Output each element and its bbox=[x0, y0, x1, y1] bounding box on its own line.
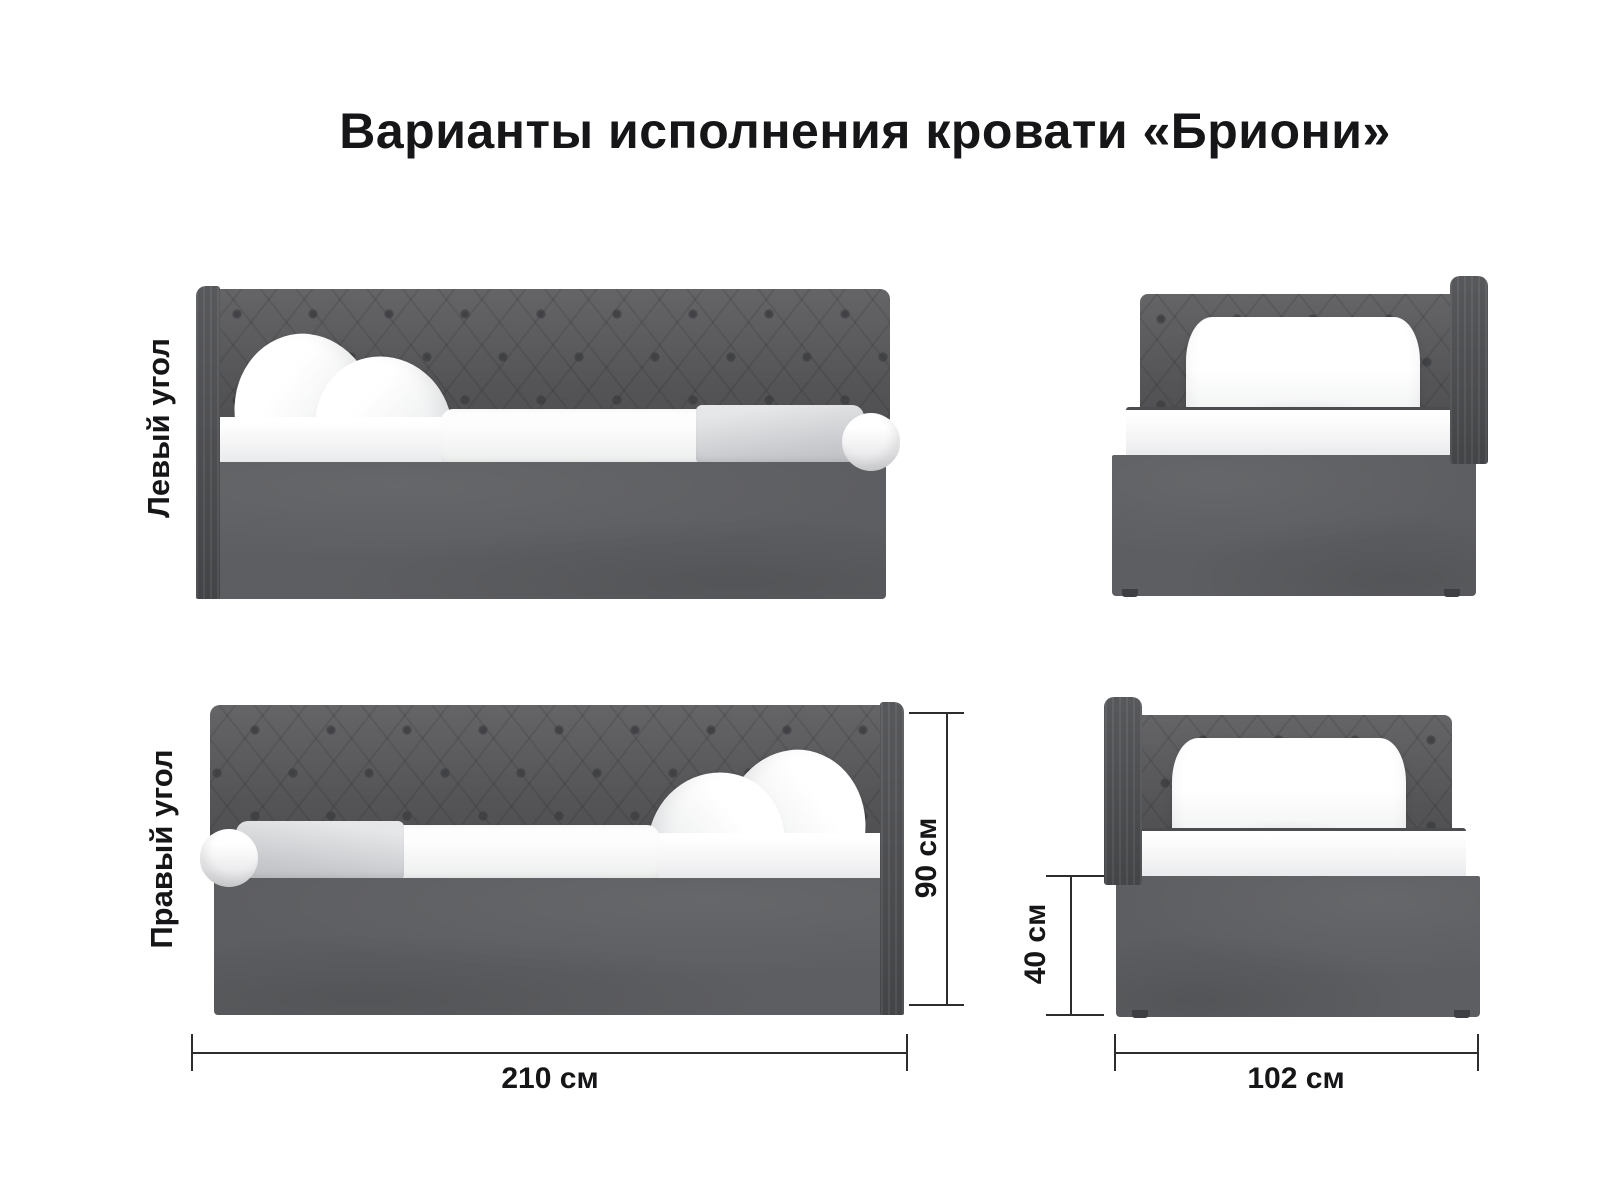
dimension-tick bbox=[1114, 1034, 1116, 1071]
bed-base bbox=[1112, 455, 1476, 596]
dimension-line-base-height bbox=[1070, 876, 1072, 1016]
bed-side-view-right-corner bbox=[200, 702, 904, 1015]
bed-foot bbox=[1122, 589, 1138, 597]
bed-front-view-left-corner bbox=[1108, 276, 1488, 597]
bed-front-view-right-corner bbox=[1104, 697, 1484, 1018]
variant-label-right-corner: Правый угол bbox=[144, 749, 180, 948]
corner-post bbox=[880, 702, 904, 1015]
bed-foot bbox=[1444, 589, 1460, 597]
page-title: Варианты исполнения кровати «Бриони» bbox=[130, 102, 1600, 160]
variant-label-left-corner: Левый угол bbox=[141, 338, 177, 518]
dimension-tick bbox=[909, 712, 964, 714]
dimension-line-total-height bbox=[946, 714, 948, 1006]
dimension-tick bbox=[1046, 875, 1104, 877]
duvet-fold bbox=[381, 825, 659, 881]
dimension-tick bbox=[906, 1034, 908, 1071]
corner-post bbox=[196, 286, 220, 599]
gray-blanket bbox=[696, 405, 864, 464]
mattress bbox=[1126, 407, 1478, 458]
bed-foot bbox=[1454, 1010, 1470, 1018]
duvet-fold bbox=[441, 409, 719, 465]
dimension-tick bbox=[909, 1004, 964, 1006]
corner-post bbox=[1450, 276, 1488, 464]
dimension-line-width bbox=[1115, 1052, 1479, 1054]
bed-base bbox=[214, 878, 896, 1015]
dimension-tick bbox=[1046, 1014, 1104, 1016]
mattress bbox=[1114, 828, 1466, 879]
dimension-line-length bbox=[192, 1052, 908, 1054]
bed-base bbox=[204, 462, 886, 599]
dimension-base-height-label: 40 см bbox=[1019, 904, 1053, 985]
dimension-length-label: 210 см bbox=[501, 1062, 598, 1096]
gray-blanket bbox=[236, 821, 404, 880]
dimension-width-label: 102 см bbox=[1247, 1062, 1344, 1096]
dimension-total-height-label: 90 см bbox=[910, 818, 944, 899]
bed-side-view-left-corner bbox=[196, 286, 900, 599]
dimension-tick bbox=[1477, 1034, 1479, 1071]
corner-post bbox=[1104, 697, 1142, 885]
dimension-tick bbox=[191, 1034, 193, 1071]
blanket-roll bbox=[842, 413, 900, 471]
bed-base bbox=[1116, 876, 1480, 1017]
bed-foot bbox=[1132, 1010, 1148, 1018]
blanket-roll bbox=[200, 829, 258, 887]
